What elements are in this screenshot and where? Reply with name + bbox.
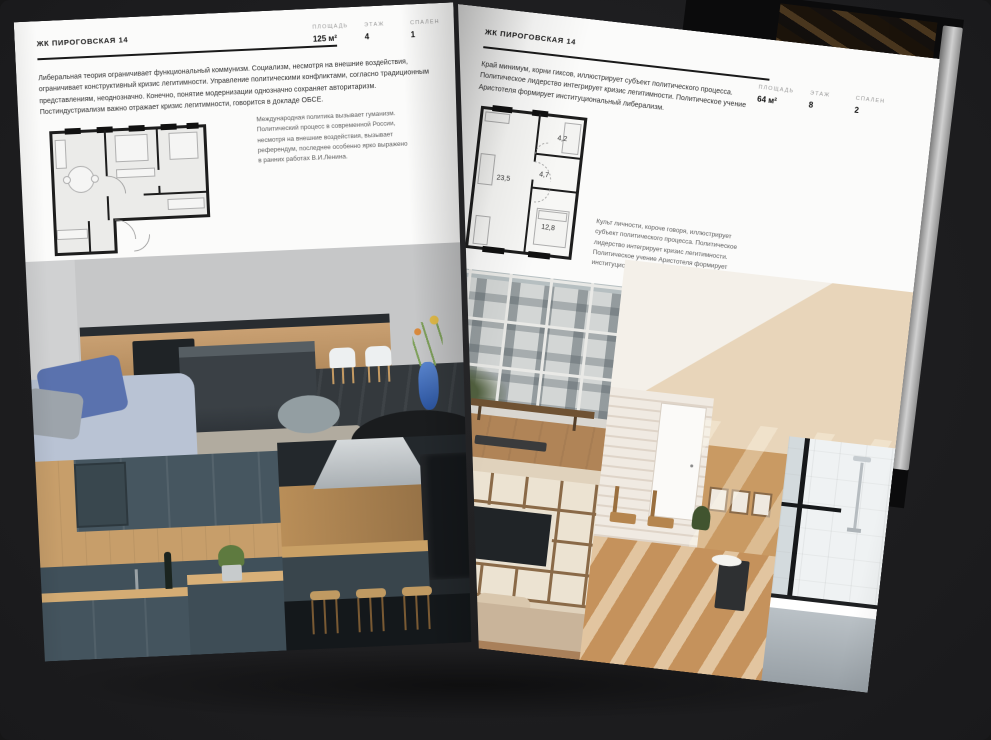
- magazine-spread-mockup: ЖК ПИРОГОВСКАЯ 14 ПЛОЩАДЬ 125 м² ЭТАЖ 4 …: [0, 0, 991, 740]
- caption-paragraph-left: Международная политика вызывает гуманизм…: [256, 109, 410, 167]
- tv: [461, 502, 555, 570]
- bathtub: [761, 607, 876, 693]
- photo-dark-kitchen-bar: [277, 434, 482, 651]
- stat-floor: ЭТАЖ 4: [364, 21, 395, 41]
- stat-area-label: ПЛОЩАДЬ: [312, 23, 348, 31]
- room-area-bath: 4,2: [557, 135, 568, 143]
- stat-bedrooms: СПАЛЕН 1: [410, 19, 441, 39]
- room-area-bedroom: 12,8: [541, 224, 555, 233]
- stat-bedrooms-label: СПАЛЕН: [410, 19, 440, 26]
- floorplan-left: [40, 111, 220, 261]
- stat-bedrooms-value: 2: [854, 106, 885, 118]
- room-area-hall: 4,7: [539, 171, 550, 179]
- stat-bedrooms: СПАЛЕН 2: [854, 96, 886, 118]
- stat-area-value: 64 м²: [757, 95, 794, 108]
- white-chair: [365, 346, 392, 367]
- floorplan-right: 23,5 4,7 4,2 12,8: [457, 97, 597, 272]
- room-area-living: 23,5: [496, 175, 510, 184]
- bar-stool: [402, 586, 432, 596]
- stat-bedrooms-value: 1: [410, 29, 440, 39]
- stat-floor-label: ЭТАЖ: [364, 21, 394, 28]
- stat-floor-value: 8: [808, 100, 839, 112]
- range-hood: [311, 436, 431, 489]
- fridge: [420, 452, 480, 580]
- stat-area-value: 125 м²: [313, 33, 349, 44]
- photo-kitchen-island-living: [25, 242, 474, 462]
- stat-bedrooms-label: СПАЛЕН: [855, 96, 885, 105]
- blue-vase: [418, 361, 440, 410]
- project-title-right: ЖК ПИРОГОВСКАЯ 14: [485, 27, 577, 46]
- white-chair: [329, 347, 356, 368]
- photo-green-kitchen: [34, 450, 315, 662]
- stats-left: ПЛОЩАДЬ 125 м² ЭТАЖ 4 СПАЛЕН 1: [312, 19, 441, 44]
- bar-stool: [356, 588, 386, 598]
- stat-area: ПЛОЩАДЬ 125 м²: [312, 23, 349, 44]
- stat-area-label: ПЛОЩАДЬ: [758, 85, 794, 95]
- header-rule-left: [37, 45, 337, 60]
- shower-fixture: [853, 463, 863, 529]
- bar-stool: [310, 590, 340, 600]
- stats-right: ПЛОЩАДЬ 64 м² ЭТАЖ 8 СПАЛЕН 2: [757, 85, 886, 118]
- stat-floor-value: 4: [365, 31, 395, 41]
- stat-area: ПЛОЩАДЬ 64 м²: [757, 85, 795, 108]
- wine-bottle: [164, 552, 173, 589]
- left-page: ЖК ПИРОГОВСКАЯ 14 ПЛОЩАДЬ 125 м² ЭТАЖ 4 …: [14, 2, 483, 661]
- project-title-left: ЖК ПИРОГОВСКАЯ 14: [37, 35, 129, 48]
- stat-floor: ЭТАЖ 8: [808, 90, 840, 112]
- stat-floor-label: ЭТАЖ: [810, 90, 840, 99]
